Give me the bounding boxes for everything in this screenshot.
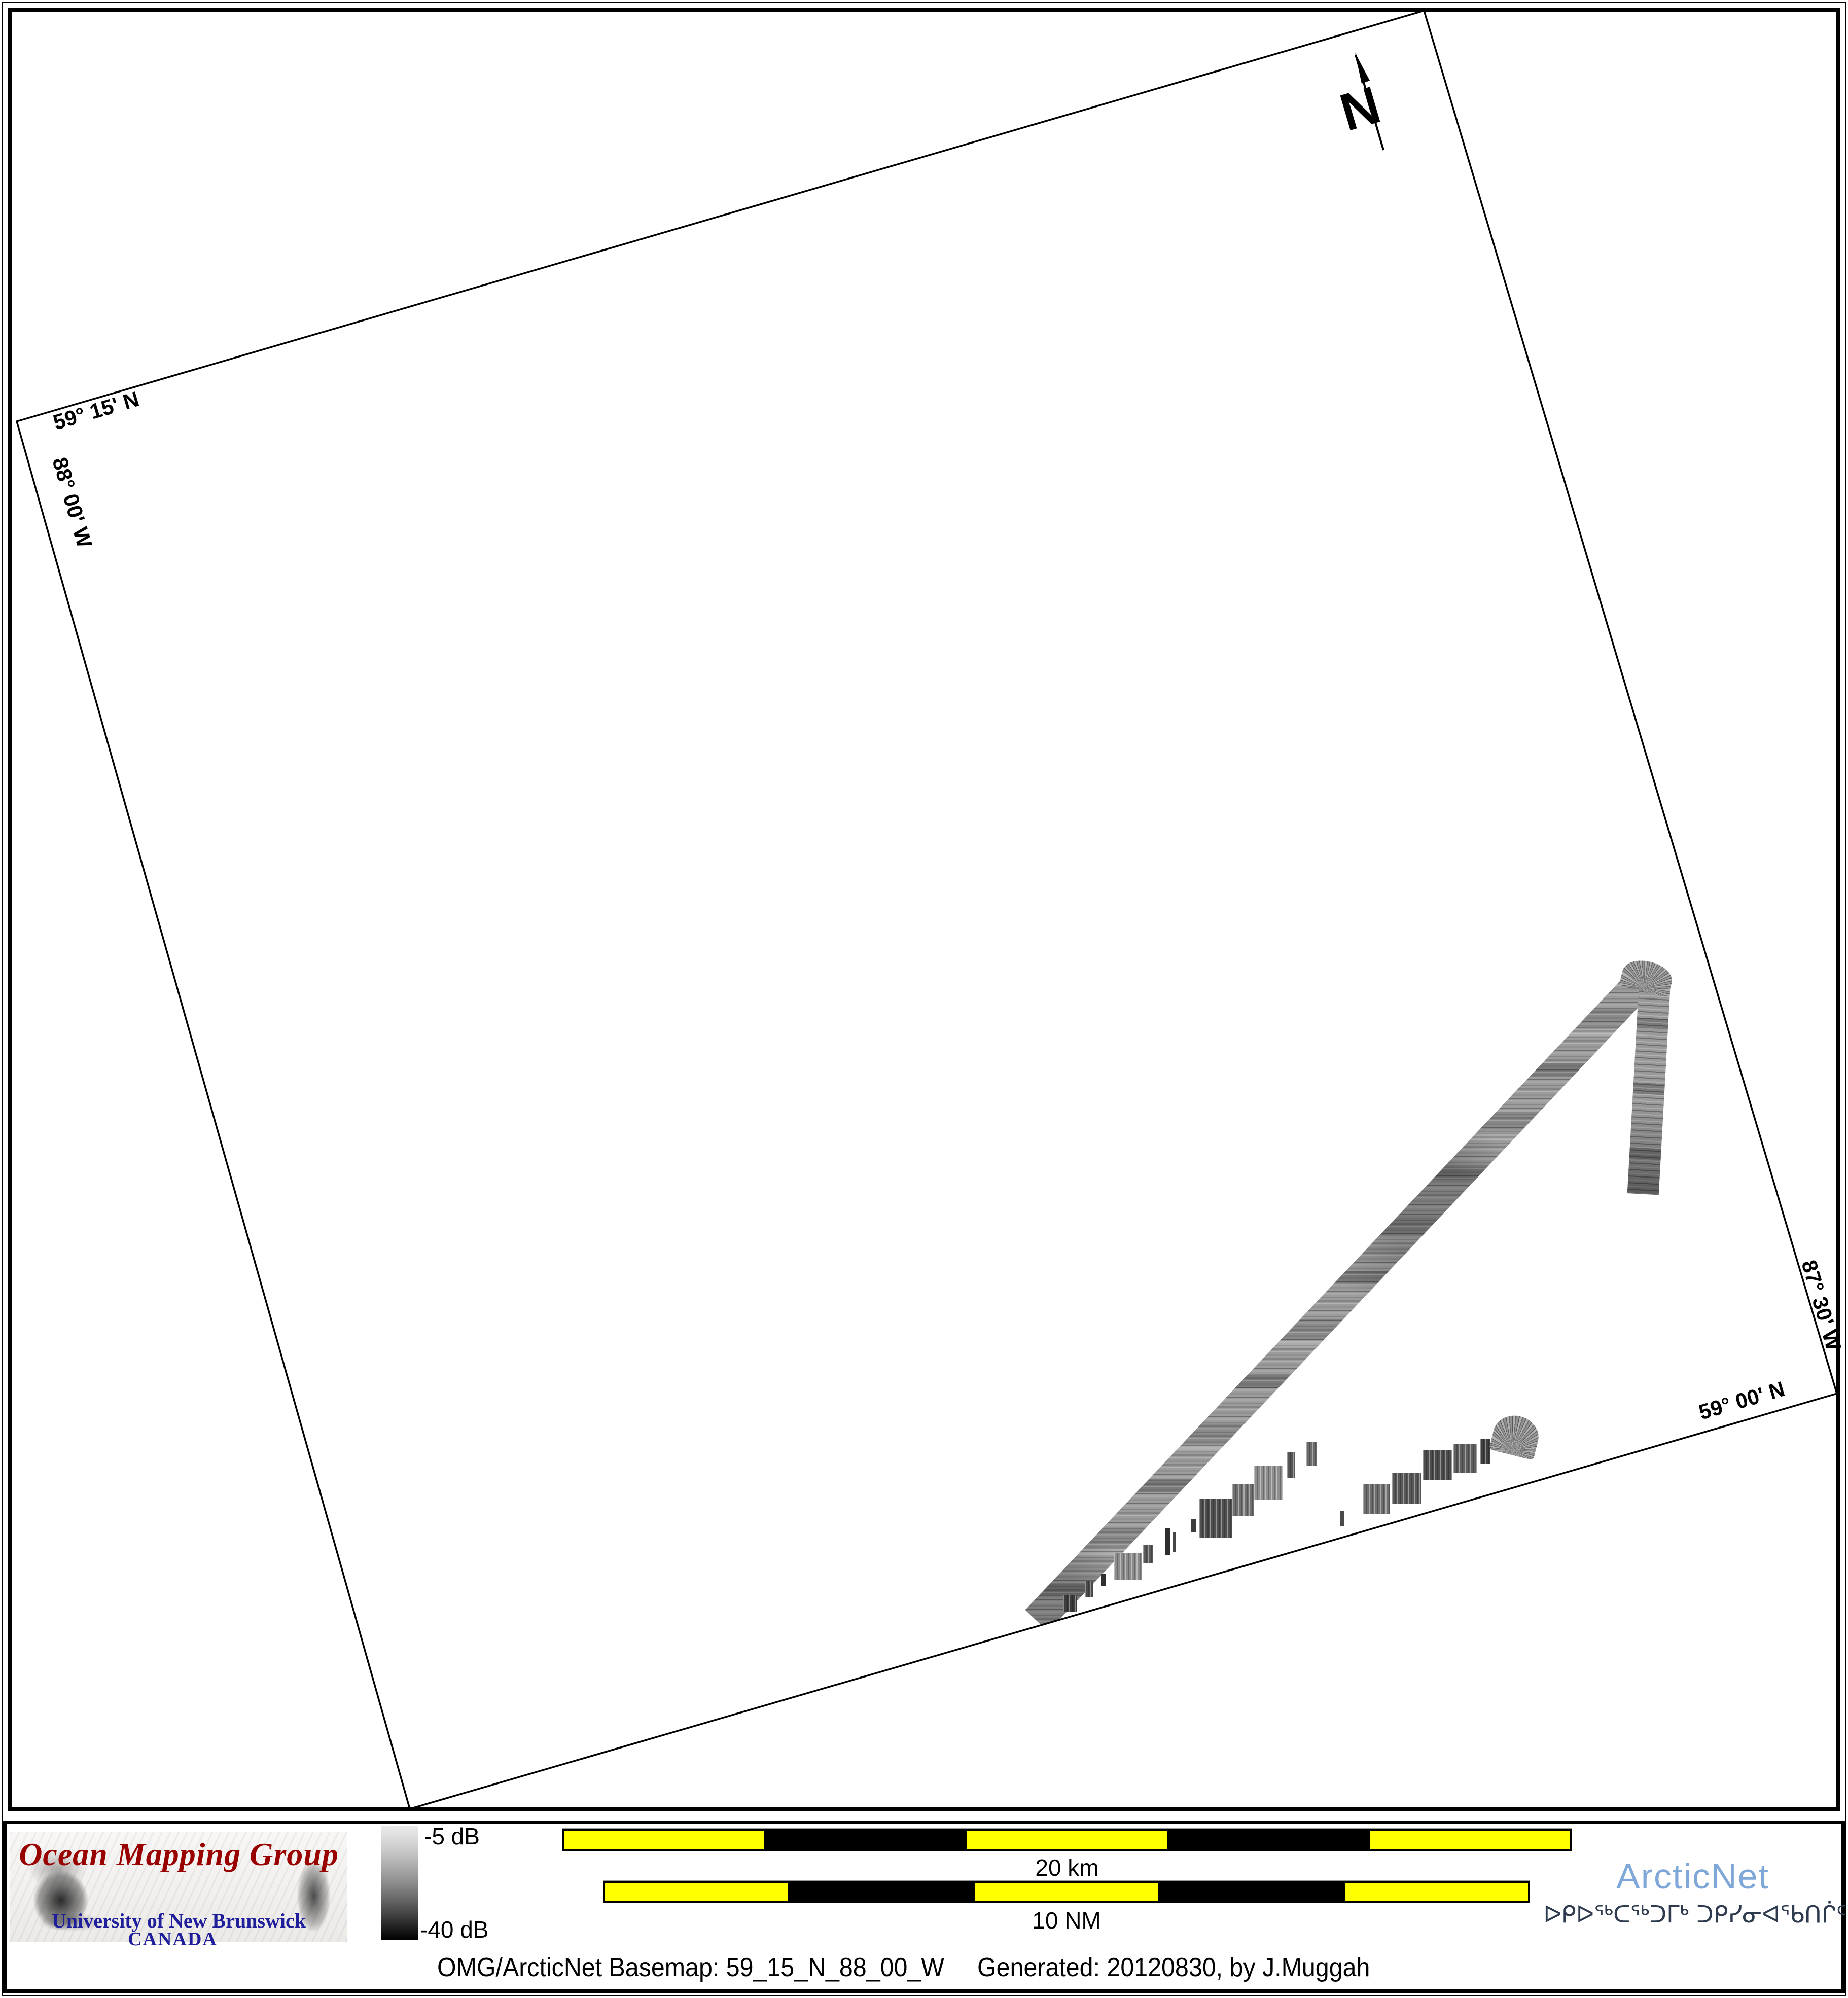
scalebar-segment: [790, 1881, 973, 1903]
sonar-track-mark: [1340, 1511, 1344, 1526]
sonar-track-mark: [1165, 1528, 1170, 1555]
arcticnet-inuktitut-name: ᐅᑭᐅᖅᑕᖅᑐᒥᒃ ᑐᑭᓯᓂᐊᖃᑎᒌᑦ: [1543, 1901, 1847, 1928]
sonar-track-mark: [1143, 1545, 1153, 1563]
arcticnet-logo: ArcticNet: [1596, 1856, 1789, 1897]
sonar-track-mark: [1287, 1452, 1295, 1478]
scalebar-segment: [1169, 1829, 1368, 1851]
sonar-track-mark: [1363, 1484, 1390, 1514]
sonar-track-mark: [1306, 1442, 1317, 1466]
scalebar-segment: [1368, 1829, 1572, 1851]
scalebar-kilometres: [562, 1828, 1572, 1851]
scalebar-nautical-miles: [603, 1880, 1530, 1903]
sonar-track-fan: [1489, 1411, 1543, 1460]
sonar-track-mark: [1254, 1466, 1283, 1500]
scalebar-nautical-miles-label: 10 NM: [603, 1907, 1530, 1934]
sonar-track-mark: [1114, 1553, 1142, 1580]
scalebar-kilometres-label: 20 km: [562, 1854, 1572, 1881]
omg-arcticnet-basemap-sheet: { "map": { "grid_labels": { "top_lat": "…: [0, 0, 1848, 1998]
sonar-track-mark: [1232, 1484, 1254, 1516]
footer-caption: OMG/ArcticNet Basemap: 59_15_N_88_00_W G…: [437, 1952, 1370, 1983]
backscatter-colorbar: [381, 1826, 418, 1940]
footer-generated-info: Generated: 20120830, by J.Muggah: [977, 1952, 1370, 1983]
sonar-track-mark: [1480, 1439, 1490, 1464]
colorbar-top-label: -5 dB: [424, 1823, 480, 1850]
scalebar-segment: [562, 1829, 766, 1851]
sonar-track-mark: [1101, 1574, 1106, 1586]
scalebar-segment: [965, 1829, 1168, 1851]
sonar-track-mark: [1063, 1595, 1077, 1612]
scalebar-segment: [973, 1881, 1160, 1903]
sonar-track-mark: [1191, 1519, 1196, 1532]
sonar-track-mark: [1423, 1450, 1452, 1480]
sonar-track-stripe: [1627, 988, 1671, 1195]
footer-basemap-id: OMG/ArcticNet Basemap: 59_15_N_88_00_W: [437, 1952, 944, 1983]
sonar-track-mark: [1392, 1473, 1421, 1504]
scalebar-segment: [603, 1881, 790, 1903]
omg-logo: Ocean Mapping Group University of New Br…: [10, 1832, 347, 1942]
omg-logo-title: Ocean Mapping Group: [10, 1836, 347, 1873]
scalebar-segment: [1160, 1881, 1343, 1903]
sonar-track-mark: [1199, 1499, 1232, 1538]
sonar-track-mark: [1453, 1444, 1477, 1473]
scalebar-segment: [1343, 1881, 1530, 1903]
sonar-track-mark: [1173, 1532, 1176, 1552]
sonar-track-mark: [1085, 1581, 1093, 1597]
colorbar-bottom-label: -40 dB: [420, 1916, 489, 1943]
scalebar-segment: [766, 1829, 965, 1851]
omg-logo-country: CANADA: [4, 1928, 341, 1950]
